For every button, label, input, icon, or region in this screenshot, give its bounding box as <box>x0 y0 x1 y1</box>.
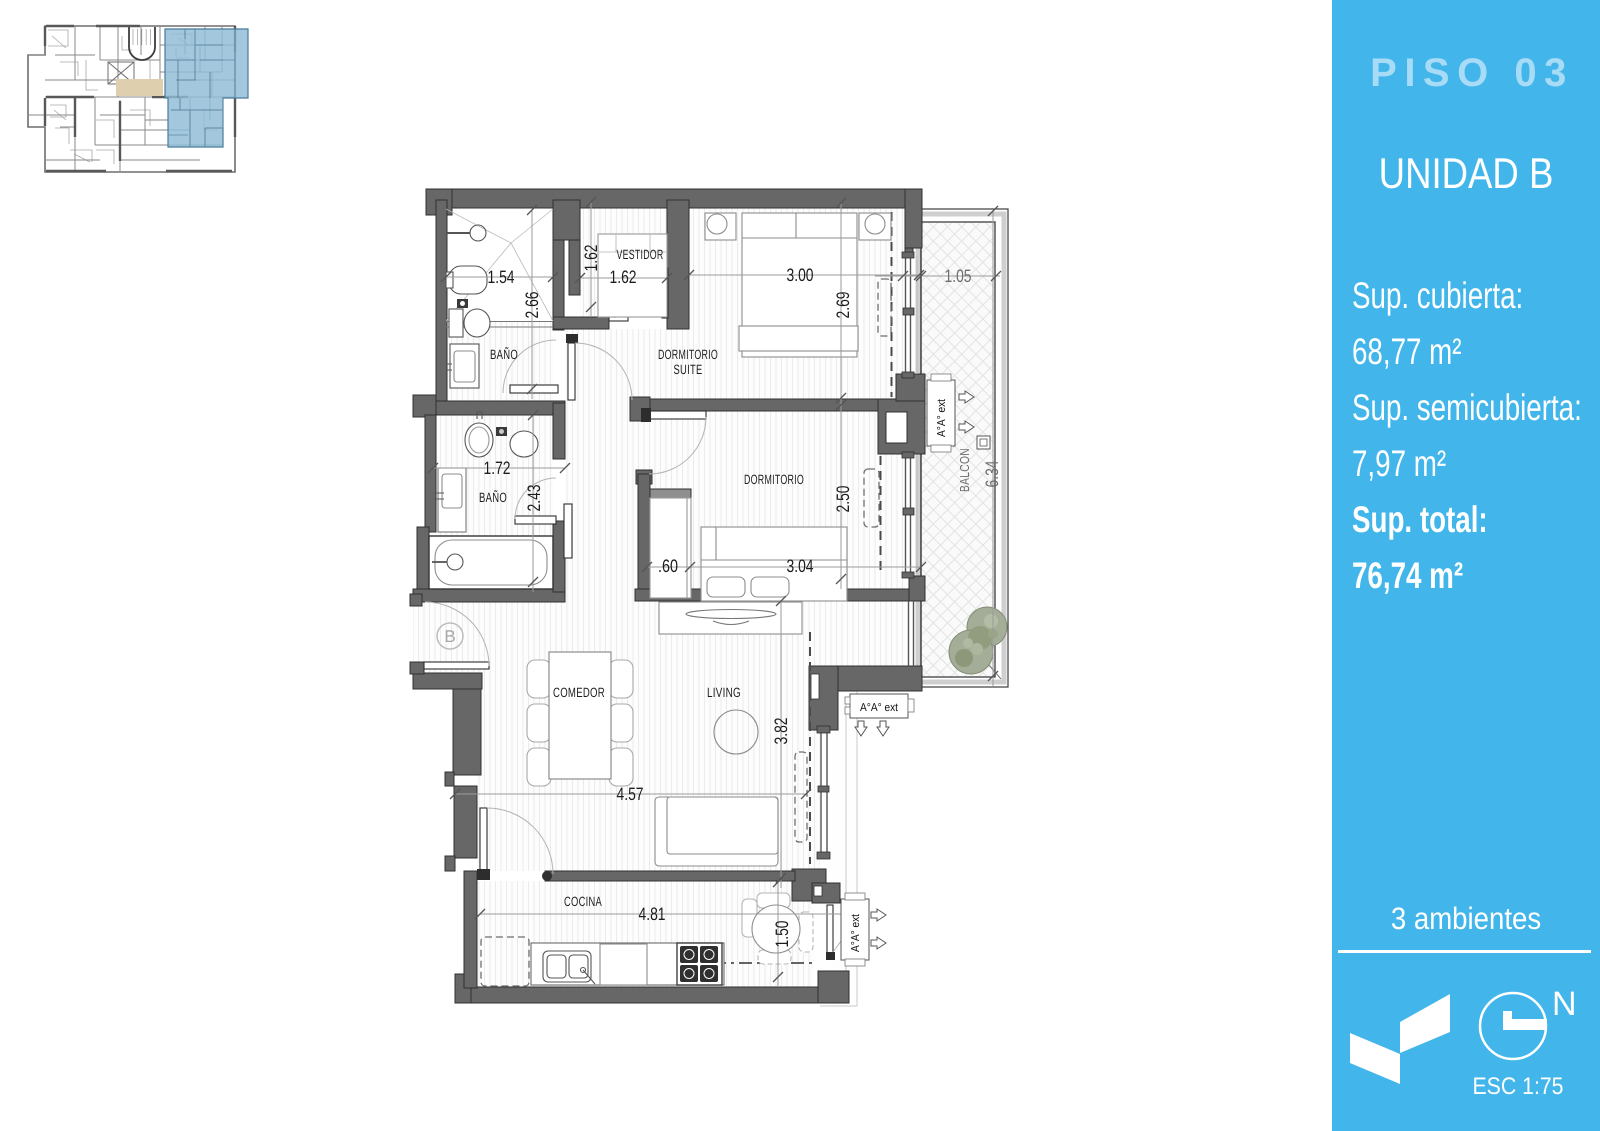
svg-text:SUITE: SUITE <box>674 362 703 377</box>
svg-text:BAÑO: BAÑO <box>490 347 518 362</box>
svg-text:1.50: 1.50 <box>772 921 792 948</box>
svg-text:1.62: 1.62 <box>610 267 637 287</box>
svg-text:2.43: 2.43 <box>524 485 544 512</box>
svg-text:COMEDOR: COMEDOR <box>553 685 605 700</box>
svg-text:2.69: 2.69 <box>833 292 853 319</box>
svg-text:6.34: 6.34 <box>982 461 1002 488</box>
svg-text:.60: .60 <box>658 556 678 576</box>
svg-text:1.54: 1.54 <box>488 267 515 287</box>
svg-text:3.04: 3.04 <box>787 556 814 576</box>
svg-text:2.66: 2.66 <box>522 292 542 319</box>
svg-text:3.82: 3.82 <box>771 718 791 745</box>
svg-text:A°A° ext: A°A° ext <box>850 913 862 952</box>
svg-text:4.57: 4.57 <box>617 784 644 804</box>
svg-text:1.05: 1.05 <box>945 266 972 286</box>
svg-text:B: B <box>444 627 455 646</box>
svg-text:A°A° ext: A°A° ext <box>936 398 948 437</box>
svg-text:LIVING: LIVING <box>707 685 741 700</box>
svg-text:BALCON: BALCON <box>957 448 972 492</box>
svg-text:4.81: 4.81 <box>639 904 666 924</box>
svg-text:A°A° ext: A°A° ext <box>860 702 899 714</box>
svg-text:1.62: 1.62 <box>581 245 601 272</box>
svg-text:ESC 1:75: ESC 1:75 <box>1473 1073 1564 1100</box>
svg-text:3.00: 3.00 <box>787 265 814 285</box>
svg-text:DORMITORIO: DORMITORIO <box>744 472 804 487</box>
svg-text:1.72: 1.72 <box>484 458 511 478</box>
svg-text:2.50: 2.50 <box>833 486 853 513</box>
svg-text:DORMITORIO: DORMITORIO <box>658 347 718 362</box>
svg-text:BAÑO: BAÑO <box>479 490 507 505</box>
svg-text:VESTIDOR: VESTIDOR <box>617 247 664 262</box>
svg-text:COCINA: COCINA <box>564 894 602 909</box>
svg-text:N: N <box>1552 985 1577 1023</box>
